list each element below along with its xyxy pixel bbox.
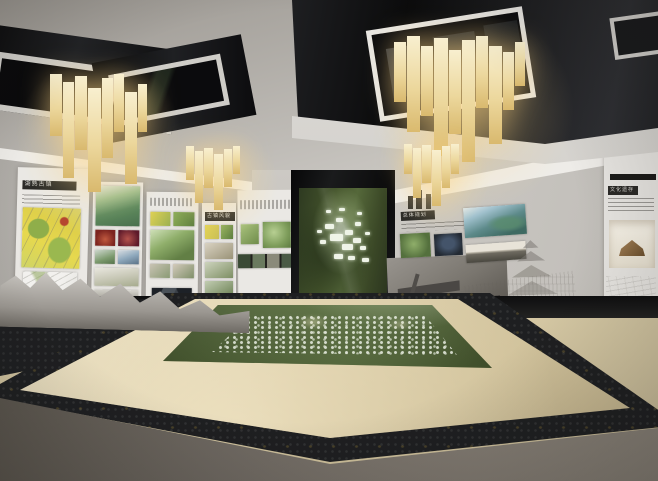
slat [214,154,223,210]
slat [421,46,433,116]
slat [138,84,147,132]
photo-a [205,243,233,259]
village-photo-2 [173,264,194,278]
slat [102,78,113,158]
slat [503,52,514,110]
timber-slat-chandelier-2 [186,146,240,210]
photo-b [205,262,233,278]
slat [404,144,412,174]
exhibition-hall-render: 湖熟古镇 古镇风貌 [0,0,658,481]
media-wall-screen [299,188,387,300]
panel-right-title: 总体规划 [401,210,435,221]
slat [50,74,62,136]
night-aerial-photo [434,233,463,256]
timber-slat-chandelier-1 [50,74,147,192]
panel-6-title: 文化遗存 [608,186,638,195]
pagoda-tier [517,251,545,262]
slat [75,76,87,150]
slat [442,146,450,188]
slat [186,146,194,180]
village-photo-1 [150,264,170,278]
panel-6-strip [610,174,656,180]
ceiling-frame-far-right [609,10,658,60]
lake-aerial-photo [463,204,527,238]
night-photo-2 [118,230,139,246]
slat [476,36,488,108]
slat [394,42,406,102]
panel-4-title: 古镇风貌 [205,212,235,221]
slat [204,148,213,188]
pagoda-tier [522,240,538,249]
slat [125,92,137,184]
small-map-2 [173,212,194,226]
slat [195,151,203,203]
slat [422,145,431,183]
small-map-1 [150,212,170,226]
green-plan-photo [400,233,431,259]
wooden-artifact-model [619,240,645,256]
landscape-photo-2 [118,250,139,264]
screen-glass-reflection [299,188,387,300]
slat [515,42,525,86]
small-green-map [241,224,259,244]
landscape-photo-1 [95,250,115,264]
photo-filmstrip [238,254,294,268]
night-photo-1 [95,230,115,246]
zoning-map-artwork [21,207,81,268]
artifact-niche [609,220,655,268]
slat [63,82,74,178]
slat [413,148,421,198]
panel-1-text [22,194,80,205]
slat [407,36,420,132]
glass-light-reflection-2 [388,320,412,329]
timber-slat-chandelier-4 [404,144,459,206]
slat [233,146,240,174]
green-illustration [263,222,291,248]
slat [451,144,459,174]
screen-floor-reflection [296,296,390,318]
panel-6-text [608,198,654,214]
green-map-small [221,225,233,239]
wide-render-photo [94,268,138,287]
slat [449,50,461,134]
green-aerial-artwork [150,230,194,260]
slat [114,74,124,132]
photo-c [205,281,233,297]
calligraphy-row [240,200,290,209]
slat [224,149,232,187]
glass-light-reflection-1 [298,316,328,328]
slat [434,38,448,156]
yellow-map-small [205,225,219,239]
slat [88,88,101,192]
slat [489,46,502,144]
slat [462,40,475,162]
exhibit-panel-6: 文化遗存 [604,150,658,420]
slat [432,150,441,206]
